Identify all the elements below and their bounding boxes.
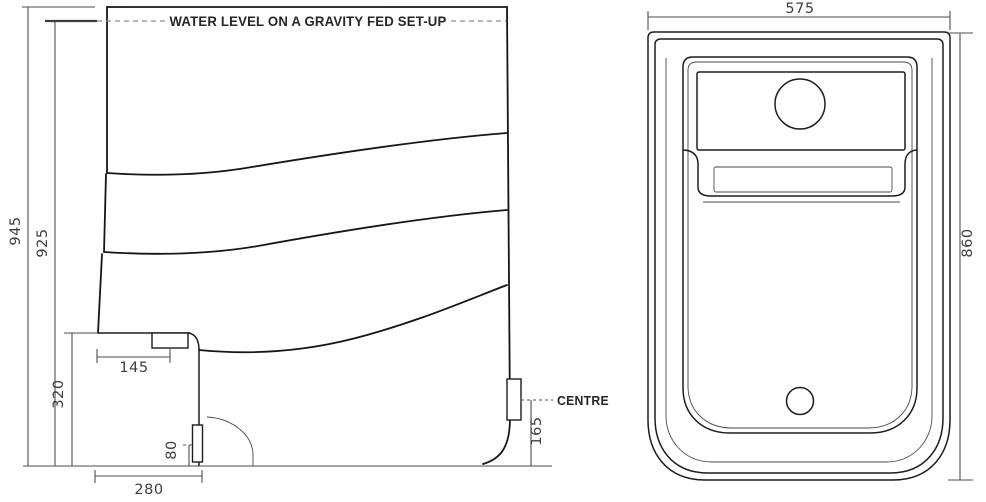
water-level-label: WATER LEVEL ON A GRAVITY FED SET-UP bbox=[170, 13, 447, 29]
dim-925-label: 925 bbox=[35, 228, 51, 257]
centre-label: CENTRE bbox=[557, 393, 609, 408]
plan-shell-mid bbox=[655, 39, 943, 473]
side-view: 945 925 WATER LEVEL ON A GRAVITY FED SET… bbox=[8, 7, 609, 498]
side-body-left-edge-mid bbox=[104, 174, 106, 252]
plan-upper-circle bbox=[775, 79, 825, 129]
dim-575-label: 575 bbox=[785, 1, 814, 17]
dim-575: 575 bbox=[648, 1, 950, 30]
dim-945-label: 945 bbox=[8, 216, 24, 245]
dim-145: 145 bbox=[97, 348, 170, 376]
dim-320-label: 320 bbox=[51, 379, 67, 408]
plan-lip-inner-rect bbox=[714, 167, 892, 192]
technical-drawing-page: 945 925 WATER LEVEL ON A GRAVITY FED SET… bbox=[0, 0, 986, 502]
wave-line-2 bbox=[104, 210, 507, 254]
upper-fitting-rect bbox=[152, 333, 188, 348]
water-level-line: WATER LEVEL ON A GRAVITY FED SET-UP bbox=[97, 13, 506, 29]
dim-145-label: 145 bbox=[119, 360, 148, 376]
plan-step-outline bbox=[684, 150, 916, 196]
plan-waste-circle bbox=[787, 388, 814, 415]
plan-upper-inner-rect bbox=[697, 72, 905, 150]
wave-line-3 bbox=[199, 285, 507, 352]
dim-280-label: 280 bbox=[134, 482, 163, 498]
dim-80: 80 bbox=[164, 440, 192, 466]
plan-view: 575 860 bbox=[648, 1, 976, 480]
plan-cavity-inner bbox=[688, 62, 912, 428]
dim-860-label: 860 bbox=[960, 228, 976, 257]
dim-320: 320 bbox=[51, 333, 98, 466]
outlet-fitting-rect bbox=[507, 379, 521, 420]
side-body-right-edge bbox=[483, 7, 510, 464]
wave-line-1 bbox=[107, 133, 507, 175]
lower-fitting-rect bbox=[193, 425, 203, 462]
dim-80-label: 80 bbox=[164, 440, 180, 459]
dim-860: 860 bbox=[948, 33, 976, 480]
plan-cavity-outer bbox=[683, 57, 917, 433]
dim-165: 165 CENTRE bbox=[521, 393, 609, 466]
dim-280: 280 bbox=[95, 470, 202, 498]
dimension-drawing-svg: 945 925 WATER LEVEL ON A GRAVITY FED SET… bbox=[0, 0, 986, 502]
side-body-left-edge-lower bbox=[98, 254, 102, 333]
dim-165-label: 165 bbox=[529, 416, 545, 445]
plan-shell-inner-wall bbox=[666, 58, 932, 462]
inner-foot-curve bbox=[207, 417, 253, 466]
